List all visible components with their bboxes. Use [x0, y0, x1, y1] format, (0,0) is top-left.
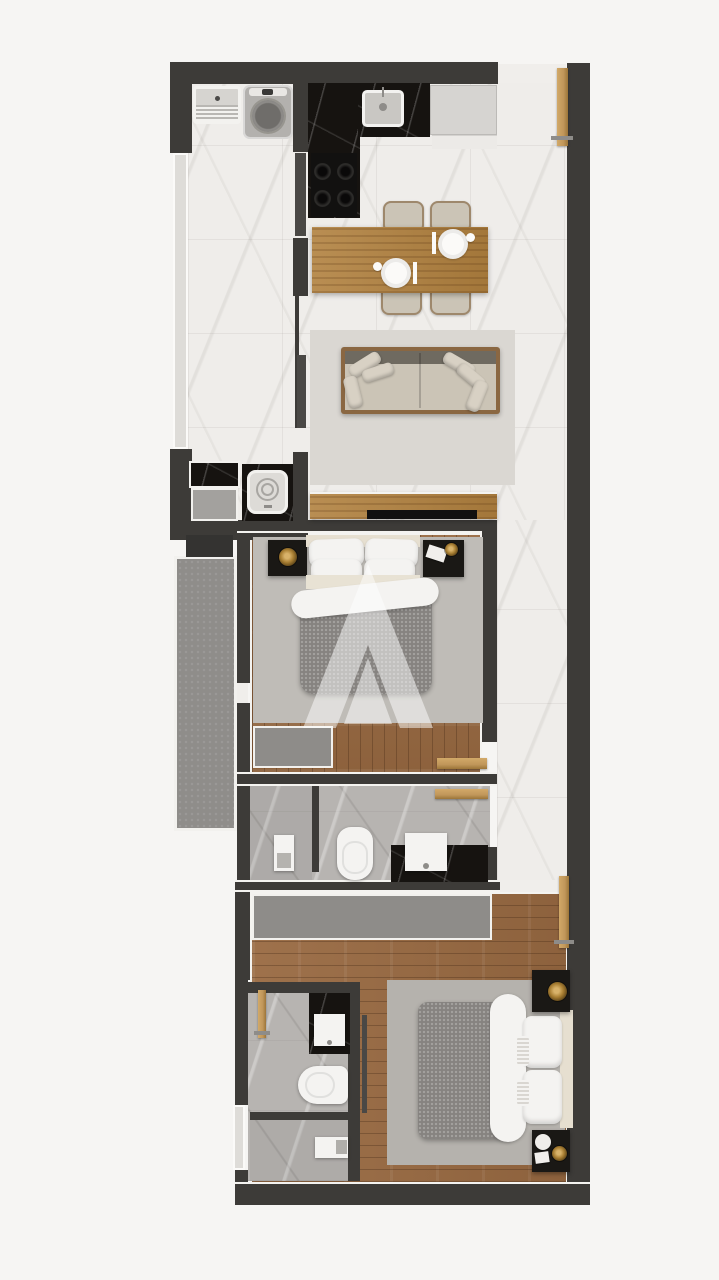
tv — [367, 510, 477, 519]
shower-fixture-grate — [277, 853, 291, 868]
bed2-accent-pillow — [517, 1036, 529, 1066]
washing-machine — [243, 85, 293, 139]
washer-display — [262, 89, 273, 95]
bathroom1-door-leaf — [435, 789, 488, 799]
kitchen-faucet — [379, 103, 387, 111]
bedroom1-wardrobe — [253, 726, 333, 768]
floor-plan — [0, 0, 719, 1280]
wall-bathroom1-top — [237, 772, 497, 786]
bathroom1-sink — [405, 833, 447, 871]
faucet — [327, 1040, 332, 1045]
sofa-cushion-seam — [419, 353, 421, 408]
bed2-accent-pillow — [517, 1080, 529, 1106]
appliance-mark — [264, 505, 272, 508]
wall-left-upper — [170, 62, 192, 153]
kitchen-sink — [362, 90, 404, 127]
window-bathroom2 — [233, 1105, 245, 1170]
book — [534, 1151, 549, 1164]
refrigerator-door — [432, 135, 497, 149]
place-setting — [438, 229, 468, 259]
tub-drain — [215, 96, 220, 101]
closet-counter — [189, 461, 240, 488]
cutlery — [413, 262, 417, 284]
plant — [445, 543, 458, 556]
hallway-floor — [497, 520, 567, 892]
kitchen-faucet-neck — [382, 87, 384, 97]
burner — [314, 163, 331, 180]
shower-fixture — [274, 835, 294, 871]
corridor-pocket-door — [297, 355, 306, 428]
glass — [466, 233, 475, 242]
burner — [314, 190, 331, 207]
bedroom2-door-leaf — [559, 876, 569, 948]
bedroom2-door-opening — [500, 880, 565, 892]
faucet — [423, 863, 429, 869]
ac-unit — [186, 535, 233, 557]
wall-kitchen-divider-b — [293, 238, 308, 296]
kitchen-pocket-door — [295, 153, 306, 236]
cutlery — [432, 232, 436, 254]
appliance-ring-inner — [261, 483, 274, 496]
balcony-door-opening — [237, 683, 248, 703]
bedroom1-door-leaf — [437, 758, 487, 769]
toilet — [298, 1066, 348, 1104]
laundry-tub — [193, 86, 241, 124]
entry-door-leaf — [557, 68, 568, 146]
wall-bottom — [235, 1182, 590, 1205]
refrigerator — [430, 85, 497, 135]
place-setting — [381, 258, 411, 288]
washboard-lines — [196, 105, 238, 121]
door-handle — [551, 136, 573, 140]
plant — [552, 1146, 567, 1161]
plant — [548, 982, 567, 1001]
wall-shower-divider — [250, 1112, 348, 1120]
watermark-logo — [293, 562, 437, 732]
wall-top — [170, 62, 498, 84]
bedroom2-wardrobe — [252, 894, 492, 940]
lamp — [535, 1134, 551, 1150]
wall-bedroom1-left-a — [237, 533, 250, 683]
closet-floor — [191, 488, 238, 521]
burner — [337, 190, 354, 207]
drain-grate — [336, 1140, 347, 1154]
door-handle — [554, 940, 574, 944]
cooktop — [311, 153, 357, 217]
window-left — [173, 153, 188, 449]
shower-partition — [312, 786, 319, 872]
bathroom2-inner-door-leaf — [362, 1015, 367, 1113]
toilet-lid-line — [305, 1072, 335, 1098]
wall-bedroom1-right — [482, 520, 497, 742]
entry-threshold — [498, 64, 566, 83]
utility-appliance — [247, 470, 288, 514]
wall-bedroom2-left-b — [235, 980, 248, 1105]
door-handle — [254, 1031, 270, 1035]
bed2-white-throw — [490, 994, 526, 1142]
bathroom2-sink — [314, 1014, 345, 1046]
toilet-lid-line — [342, 841, 368, 874]
wall-kitchen-divider-a — [293, 80, 308, 152]
washer-drum — [252, 100, 284, 132]
shower-drain — [315, 1137, 348, 1158]
burner — [337, 163, 354, 180]
wall-bedroom1-top — [237, 520, 497, 533]
toilet — [337, 827, 373, 880]
glass — [373, 262, 382, 271]
wall-bedroom1-left-b — [237, 703, 250, 890]
wall-bedroom2-left-a — [235, 892, 250, 980]
balcony-floor — [174, 556, 237, 831]
wall-kitchen-divider-c — [293, 452, 308, 522]
